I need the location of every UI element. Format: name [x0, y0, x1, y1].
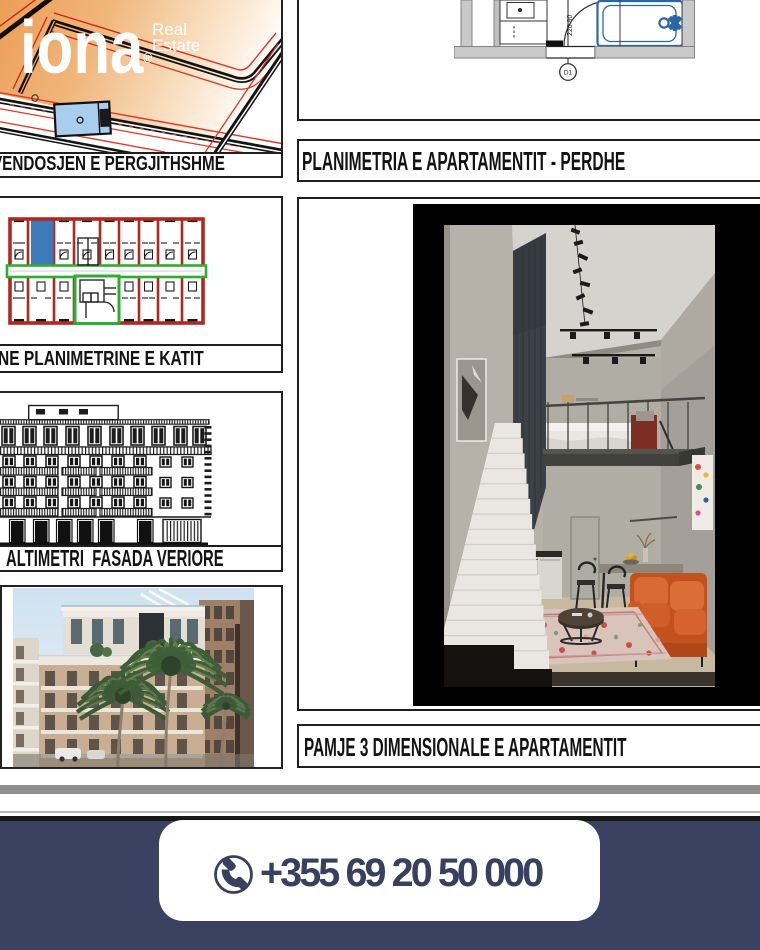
svg-text:D1: D1	[564, 70, 573, 77]
